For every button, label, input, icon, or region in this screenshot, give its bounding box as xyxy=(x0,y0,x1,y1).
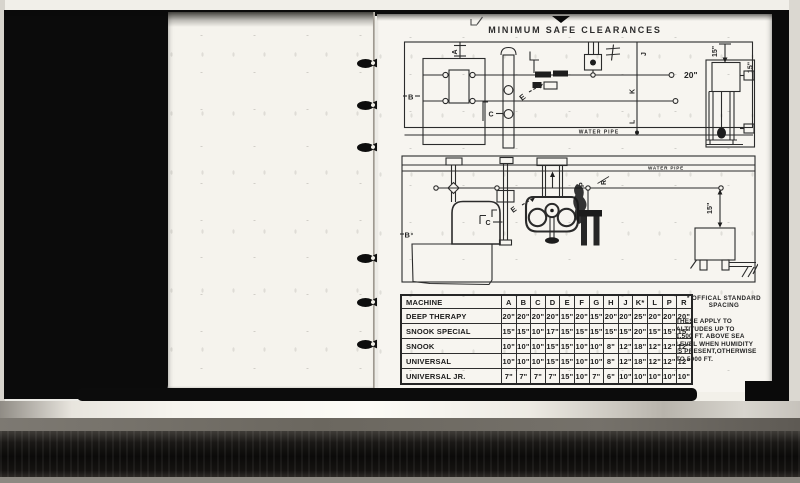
film-bottom-strip xyxy=(0,477,800,483)
clearance-value-cell: 10" xyxy=(618,369,633,385)
clearance-value-cell: 12" xyxy=(662,354,677,369)
dim-a: A xyxy=(452,42,466,59)
film-right-edge xyxy=(789,0,800,410)
label-c: C xyxy=(489,112,494,119)
film-top-strip xyxy=(0,0,800,10)
clearance-value-cell: 10" xyxy=(516,354,531,369)
clearance-value-cell: 10" xyxy=(677,369,692,385)
page-edge-grime xyxy=(377,14,772,21)
table-row: UNIVERSAL10"10"10"15"15"10"10"8"12"18"12… xyxy=(401,354,692,369)
clearance-value-cell: 10" xyxy=(502,339,517,354)
clearance-value-cell: 15" xyxy=(647,324,662,339)
clearance-value-cell: 20" xyxy=(618,309,633,324)
column-header: P xyxy=(662,295,677,309)
machine-name-cell: DEEP THERAPY xyxy=(401,309,502,324)
clearance-value-cell: 10" xyxy=(502,354,517,369)
clearance-value-cell: 15" xyxy=(560,339,575,354)
note-body-line: 1,500 FT. ABOVE SEA xyxy=(676,333,772,341)
note-body-line: IS PRESENT,OTHERWISE xyxy=(676,348,772,356)
clearance-value-cell: 18" xyxy=(633,339,648,354)
note-body-line: ALTITUDES UP TO xyxy=(676,326,772,334)
clearance-value-cell: 10" xyxy=(516,339,531,354)
clearance-value-cell: 15" xyxy=(560,354,575,369)
pipe-lines xyxy=(475,73,678,104)
note-body-line: LEVEL WHEN HUMIDITY xyxy=(676,341,772,349)
page-bottom-shadow xyxy=(77,388,697,401)
label-b: B xyxy=(405,231,411,240)
clearance-value-cell: 20" xyxy=(633,324,648,339)
film-black-area xyxy=(4,10,168,399)
machine-name-cell: SNOOK SPECIAL xyxy=(401,324,502,339)
film-right-bar xyxy=(772,10,789,402)
dim-20-label: 20" xyxy=(684,70,698,80)
clearance-value-cell: 20" xyxy=(545,309,560,324)
table-row: SNOOK10"10"10"15"15"10"10"8"12"18"12"12"… xyxy=(401,339,692,354)
scanned-page-photo: MINIMUM SAFE CLEARANCES WATER PIPE A B xyxy=(0,0,800,483)
ceiling-support-plan xyxy=(585,42,602,77)
dim-f xyxy=(606,45,620,61)
dim-15-label: 15" xyxy=(705,203,714,214)
note-body-line: THESE APPLY TO xyxy=(676,318,772,326)
label-b: B xyxy=(408,93,414,102)
clearance-value-cell: 12" xyxy=(647,339,662,354)
dim-15-top-label: 15" xyxy=(712,46,719,57)
dim-b: B xyxy=(403,93,420,102)
clearance-value-cell: 8" xyxy=(604,339,619,354)
elevation-view-diagram: WATER PIPE xyxy=(400,154,758,288)
column-header: G xyxy=(589,295,604,309)
machine-name-cell: UNIVERSAL JR. xyxy=(401,369,502,385)
column-header: MACHINE xyxy=(401,295,502,309)
table-header-row: MACHINEABCDEFGHJK*LPR xyxy=(401,295,692,309)
column-header: D xyxy=(545,295,560,309)
note-heading-line: * OFFICAL STANDARD xyxy=(676,295,772,302)
label-l: L xyxy=(630,119,637,124)
page-texture xyxy=(168,12,374,398)
clearance-value-cell: 10" xyxy=(662,369,677,385)
dim-e: E xyxy=(518,84,543,103)
clearance-value-cell: 15" xyxy=(545,339,560,354)
film-streaks xyxy=(0,431,800,477)
note-block: * OFFICAL STANDARD SPACING THESE APPLY T… xyxy=(676,295,772,364)
clearance-value-cell: 15" xyxy=(545,354,560,369)
clearance-value-cell: 20" xyxy=(531,309,546,324)
clearance-value-cell: 15" xyxy=(662,324,677,339)
clearance-value-cell: 10" xyxy=(574,369,589,385)
dim-c: C xyxy=(483,102,503,121)
water-pipe-label: WATER PIPE xyxy=(648,166,684,171)
clearance-value-cell: 17" xyxy=(545,324,560,339)
clearance-value-cell: 10" xyxy=(589,354,604,369)
clearance-value-cell: 20" xyxy=(647,309,662,324)
clearance-value-cell: 10" xyxy=(531,339,546,354)
clearance-value-cell: 15" xyxy=(516,324,531,339)
clearance-value-cell: 25" xyxy=(633,309,648,324)
column-header: F xyxy=(574,295,589,309)
clearance-value-cell: 20" xyxy=(574,309,589,324)
column-header: K* xyxy=(633,295,648,309)
clearance-table: MACHINEABCDEFGHJK*LPRDEEP THERAPY20"20"2… xyxy=(400,294,693,385)
clearance-value-cell: 15" xyxy=(502,324,517,339)
column-header: J xyxy=(618,295,633,309)
dim-jkl: J K L xyxy=(630,42,649,135)
label-k: K xyxy=(630,89,637,94)
clearance-value-cell: 15" xyxy=(560,309,575,324)
film-gray-band xyxy=(0,418,800,431)
column-header: C xyxy=(531,295,546,309)
clearance-value-cell: 20" xyxy=(516,309,531,324)
column-header: A xyxy=(502,295,517,309)
dim-p: P xyxy=(579,182,586,187)
column-header: B xyxy=(516,295,531,309)
column-plan xyxy=(501,48,516,149)
wall-unit-elevation: 15" xyxy=(691,189,759,277)
clearance-value-cell: 15" xyxy=(589,309,604,324)
clearance-value-cell: 15" xyxy=(589,324,604,339)
clearance-value-cell: 7" xyxy=(531,369,546,385)
page-title: MINIMUM SAFE CLEARANCES xyxy=(470,25,680,35)
clearance-value-cell: 15" xyxy=(604,324,619,339)
machine-name-cell: SNOOK xyxy=(401,339,502,354)
clearance-value-cell: 12" xyxy=(647,354,662,369)
note-body-line: TO 5000 FT. xyxy=(676,356,772,364)
note-heading-line: SPACING xyxy=(676,302,772,309)
table-row: SNOOK SPECIAL15"15"10"17"15"15"15"15"15"… xyxy=(401,324,692,339)
clearance-value-cell: 10" xyxy=(531,324,546,339)
clearance-value-cell: 10" xyxy=(633,369,648,385)
machine-name-cell: UNIVERSAL xyxy=(401,354,502,369)
film-notch xyxy=(552,16,570,23)
label-j: J xyxy=(641,52,648,56)
film-black-block xyxy=(745,381,789,402)
clearance-value-cell: 10" xyxy=(531,354,546,369)
clearance-value-cell: 12" xyxy=(618,339,633,354)
clearance-value-cell: 12" xyxy=(618,354,633,369)
clearance-value-cell: 15" xyxy=(574,324,589,339)
column-header: E xyxy=(560,295,575,309)
clearance-value-cell: 8" xyxy=(604,354,619,369)
tube-assembly-plan xyxy=(530,52,568,90)
table-row: UNIVERSAL JR.7"7"7"7"15"10"7"6"10"10"10"… xyxy=(401,369,692,385)
clearance-value-cell: 7" xyxy=(502,369,517,385)
clearance-value-cell: 10" xyxy=(647,369,662,385)
film-dark-band xyxy=(0,431,800,477)
left-page xyxy=(168,12,374,398)
clearance-value-cell: 15" xyxy=(560,324,575,339)
clearance-value-cell: 10" xyxy=(574,354,589,369)
wall-unit-plan: 15" 15" xyxy=(706,44,755,147)
plan-view-diagram: WATER PIPE A B xyxy=(403,40,757,150)
clearance-value-cell: 18" xyxy=(633,354,648,369)
water-pipe-label: WATER PIPE xyxy=(579,130,619,136)
dim-r: R xyxy=(598,177,610,186)
column-header: L xyxy=(647,295,662,309)
clearance-value-cell: 15" xyxy=(560,369,575,385)
column-header: H xyxy=(604,295,619,309)
clearance-value-cell: 20" xyxy=(662,309,677,324)
label-p: P xyxy=(579,182,586,187)
clearance-value-cell: 20" xyxy=(502,309,517,324)
clearance-value-cell: 20" xyxy=(604,309,619,324)
label-e: E xyxy=(509,204,518,214)
label-a: A xyxy=(452,49,459,54)
note-body: THESE APPLY TO ALTITUDES UP TO 1,500 FT.… xyxy=(676,318,772,364)
clearance-value-cell: 10" xyxy=(589,339,604,354)
clearance-value-cell: 10" xyxy=(574,339,589,354)
page-edge-grime xyxy=(168,12,374,27)
clearance-value-cell: 7" xyxy=(589,369,604,385)
dim-c: C xyxy=(480,216,503,228)
clearance-value-cell: 7" xyxy=(545,369,560,385)
table-row: DEEP THERAPY20"20"20"20"15"20"15"20"20"2… xyxy=(401,309,692,324)
film-glare-band xyxy=(0,401,800,418)
label-c: C xyxy=(486,220,491,227)
clearance-value-cell: 6" xyxy=(604,369,619,385)
clearance-value-cell: 15" xyxy=(618,324,633,339)
clearance-value-cell: 12" xyxy=(662,339,677,354)
clearance-value-cell: 7" xyxy=(516,369,531,385)
